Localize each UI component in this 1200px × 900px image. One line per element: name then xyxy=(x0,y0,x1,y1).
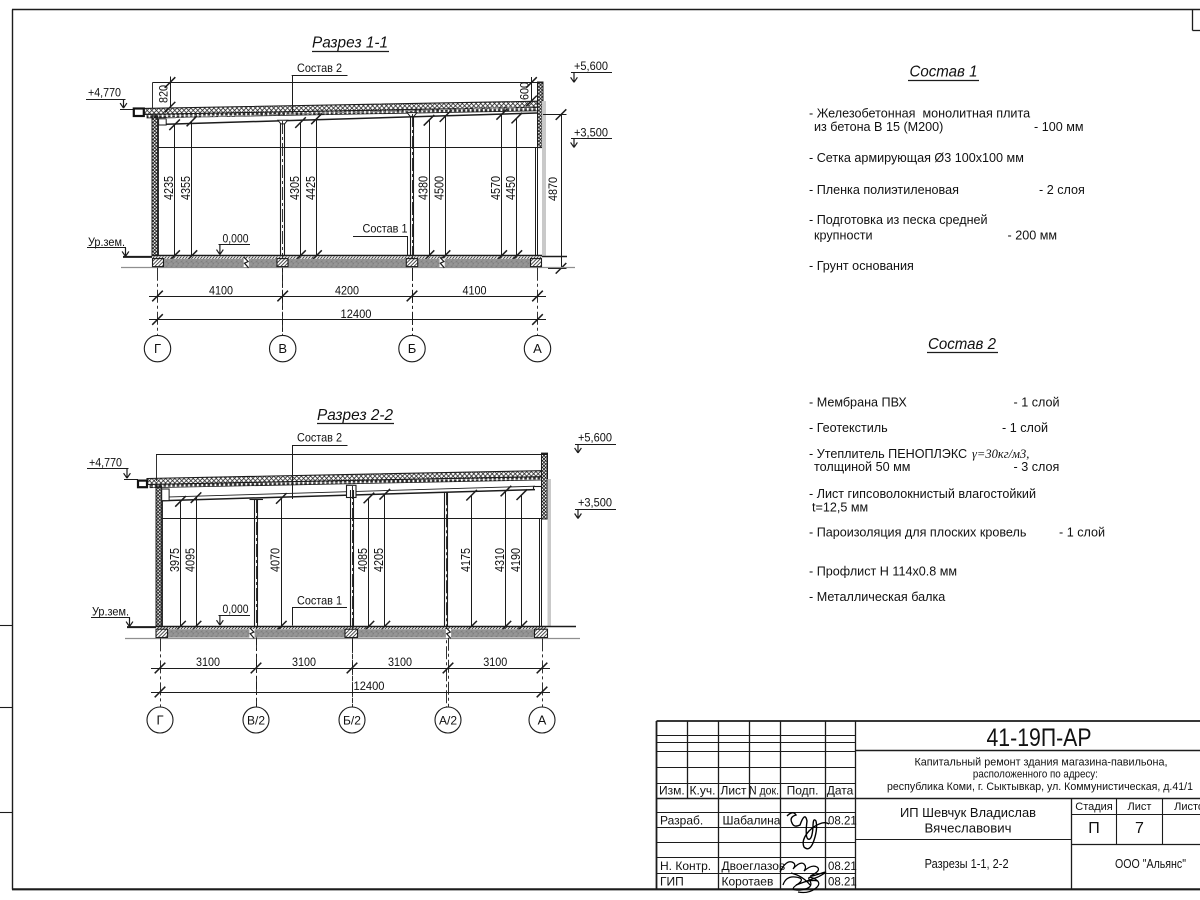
svg-text:Б: Б xyxy=(408,341,417,356)
svg-text:Г: Г xyxy=(156,712,163,727)
svg-text:08.21: 08.21 xyxy=(828,861,857,873)
svg-text:Г: Г xyxy=(154,341,161,356)
svg-text:Состав 2: Состав 2 xyxy=(297,61,342,75)
svg-text:+3,500: +3,500 xyxy=(574,125,608,139)
svg-text:Лист: Лист xyxy=(721,783,747,797)
svg-text:4100: 4100 xyxy=(463,284,487,298)
svg-text:- Пароизоляция для плоских кро: - Пароизоляция для плоских кровель xyxy=(809,526,1027,540)
svg-text:- 1 слой: - 1 слой xyxy=(1002,421,1048,435)
svg-text:- Металлическая балка: - Металлическая балка xyxy=(809,590,945,604)
svg-text:Состав 1: Состав 1 xyxy=(297,594,342,608)
svg-text:Ур.зем.: Ур.зем. xyxy=(92,604,129,618)
svg-text:А: А xyxy=(533,341,542,356)
svg-text:Разрез 2-2: Разрез 2-2 xyxy=(317,407,393,424)
svg-text:+5,600: +5,600 xyxy=(574,59,608,73)
svg-text:республика Коми, г. Сыктывкар,: республика Коми, г. Сыктывкар, ул. Комму… xyxy=(887,781,1193,793)
svg-text:γ=30кг/м3,: γ=30кг/м3, xyxy=(972,447,1029,461)
svg-text:В/2: В/2 xyxy=(247,713,265,727)
svg-text:крупности: крупности xyxy=(814,229,873,243)
svg-text:4095: 4095 xyxy=(182,548,197,572)
svg-text:12400: 12400 xyxy=(354,679,385,693)
svg-text:- Геотекстиль: - Геотекстиль xyxy=(809,421,888,435)
svg-text:- 1 слой: - 1 слой xyxy=(1059,526,1105,540)
svg-text:Лист: Лист xyxy=(1128,801,1152,813)
svg-text:П: П xyxy=(1088,820,1100,837)
svg-text:4205: 4205 xyxy=(371,548,386,572)
svg-text:- 200 мм: - 200 мм xyxy=(1008,229,1058,243)
svg-text:600: 600 xyxy=(518,82,532,100)
svg-text:N док.: N док. xyxy=(749,783,779,797)
svg-text:Ур.зем.: Ур.зем. xyxy=(88,235,125,249)
svg-text:Разраб.: Разраб. xyxy=(660,814,703,828)
svg-text:- Железобетонная монолитная п: - Железобетонная монолитная плита xyxy=(809,107,1030,121)
svg-text:3100: 3100 xyxy=(292,655,316,669)
svg-text:Состав 1: Состав 1 xyxy=(910,64,978,81)
svg-text:+4,770: +4,770 xyxy=(89,455,122,469)
svg-text:4450: 4450 xyxy=(503,176,518,200)
svg-text:4355: 4355 xyxy=(178,176,193,200)
svg-text:- Профлист Н 114x0.8 мм: - Профлист Н 114x0.8 мм xyxy=(809,565,957,579)
svg-text:А/2: А/2 xyxy=(439,713,457,727)
svg-text:4175: 4175 xyxy=(458,548,473,572)
svg-text:4310: 4310 xyxy=(492,548,507,572)
svg-text:Шабалина: Шабалина xyxy=(723,814,781,828)
svg-text:- 3 слоя: - 3 слоя xyxy=(1014,460,1060,474)
svg-text:08.21: 08.21 xyxy=(828,816,857,828)
svg-text:4380: 4380 xyxy=(415,176,430,200)
svg-text:Двоеглазов: Двоеглазов xyxy=(722,859,786,873)
svg-text:4085: 4085 xyxy=(355,548,370,572)
svg-text:Состав 2: Состав 2 xyxy=(928,336,996,353)
svg-text:t=12,5 мм: t=12,5 мм xyxy=(812,501,868,515)
svg-text:4100: 4100 xyxy=(209,284,233,298)
svg-text:расположенного по адресу:: расположенного по адресу: xyxy=(973,769,1098,781)
svg-text:0,000: 0,000 xyxy=(223,232,249,246)
svg-text:- Лист гипсоволокнистый влагос: - Лист гипсоволокнистый влагостойкий xyxy=(809,487,1036,501)
svg-text:ИП Шевчук Владислав: ИП Шевчук Владислав xyxy=(900,805,1036,820)
svg-text:4870: 4870 xyxy=(546,177,560,201)
svg-text:+5,600: +5,600 xyxy=(578,431,612,445)
svg-text:- Подготовка из песка средней: - Подготовка из песка средней xyxy=(809,213,988,227)
svg-text:4500: 4500 xyxy=(431,176,446,200)
svg-text:Капитальный ремонт здания мага: Капитальный ремонт здания магазина-павил… xyxy=(915,757,1168,769)
svg-text:3100: 3100 xyxy=(483,655,507,669)
svg-text:7: 7 xyxy=(1135,820,1144,837)
svg-text:41-19П-АР: 41-19П-АР xyxy=(987,724,1092,752)
svg-text:+3,500: +3,500 xyxy=(578,496,612,510)
svg-text:3100: 3100 xyxy=(196,655,220,669)
svg-text:4235: 4235 xyxy=(161,176,176,200)
svg-text:Дата: Дата xyxy=(827,783,854,797)
svg-text:Изм.: Изм. xyxy=(659,783,685,797)
svg-text:Коротаев: Коротаев xyxy=(722,874,774,888)
svg-text:- Сетка армирующая Ø3 100x100: - Сетка армирующая Ø3 100x100 мм xyxy=(809,151,1024,165)
svg-text:Листов: Листов xyxy=(1174,801,1200,813)
svg-text:Вячеславович: Вячеславович xyxy=(925,821,1012,836)
svg-text:820: 820 xyxy=(156,85,170,103)
svg-text:3975: 3975 xyxy=(167,548,182,572)
svg-text:Разрезы 1-1, 2-2: Разрезы 1-1, 2-2 xyxy=(925,857,1009,871)
svg-text:- 1 слой: - 1 слой xyxy=(1014,396,1060,410)
svg-text:+4,770: +4,770 xyxy=(88,85,121,99)
svg-text:- 100 мм: - 100 мм xyxy=(1034,120,1084,134)
svg-text:ООО "Альянс": ООО "Альянс" xyxy=(1115,857,1186,871)
svg-text:0,000: 0,000 xyxy=(223,602,249,616)
svg-text:К.уч.: К.уч. xyxy=(690,783,716,797)
svg-text:4425: 4425 xyxy=(303,176,318,200)
svg-text:- 2 слоя: - 2 слоя xyxy=(1039,183,1085,197)
svg-text:4305: 4305 xyxy=(287,176,302,200)
svg-text:Состав 1: Состав 1 xyxy=(363,222,408,236)
svg-text:- Утеплитель ПЕНОПЛЭКС: - Утеплитель ПЕНОПЛЭКС xyxy=(809,447,967,461)
svg-text:Подп.: Подп. xyxy=(787,783,819,797)
svg-text:08.21: 08.21 xyxy=(828,876,857,888)
svg-text:ГИП: ГИП xyxy=(660,874,684,888)
svg-text:Состав 2: Состав 2 xyxy=(297,430,342,444)
svg-text:Стадия: Стадия xyxy=(1075,801,1113,813)
svg-text:Б/2: Б/2 xyxy=(343,713,361,727)
svg-text:4570: 4570 xyxy=(488,176,503,200)
svg-text:4200: 4200 xyxy=(335,284,359,298)
svg-text:- Мембрана ПВХ: - Мембрана ПВХ xyxy=(809,396,907,410)
svg-text:- Грунт основания: - Грунт основания xyxy=(809,259,914,273)
svg-text:А: А xyxy=(538,712,547,727)
svg-text:- Пленка полиэтиленовая: - Пленка полиэтиленовая xyxy=(809,183,959,197)
svg-text:Н. Контр.: Н. Контр. xyxy=(660,859,711,873)
svg-text:3100: 3100 xyxy=(388,655,412,669)
svg-text:12400: 12400 xyxy=(341,307,372,321)
svg-text:из бетона В 15 (М200): из бетона В 15 (М200) xyxy=(814,120,943,134)
svg-text:толщиной 50 мм: толщиной 50 мм xyxy=(814,460,910,474)
svg-text:Разрез 1-1: Разрез 1-1 xyxy=(312,35,388,52)
svg-text:4190: 4190 xyxy=(508,548,523,572)
svg-text:4070: 4070 xyxy=(268,548,283,572)
svg-text:В: В xyxy=(278,341,287,356)
